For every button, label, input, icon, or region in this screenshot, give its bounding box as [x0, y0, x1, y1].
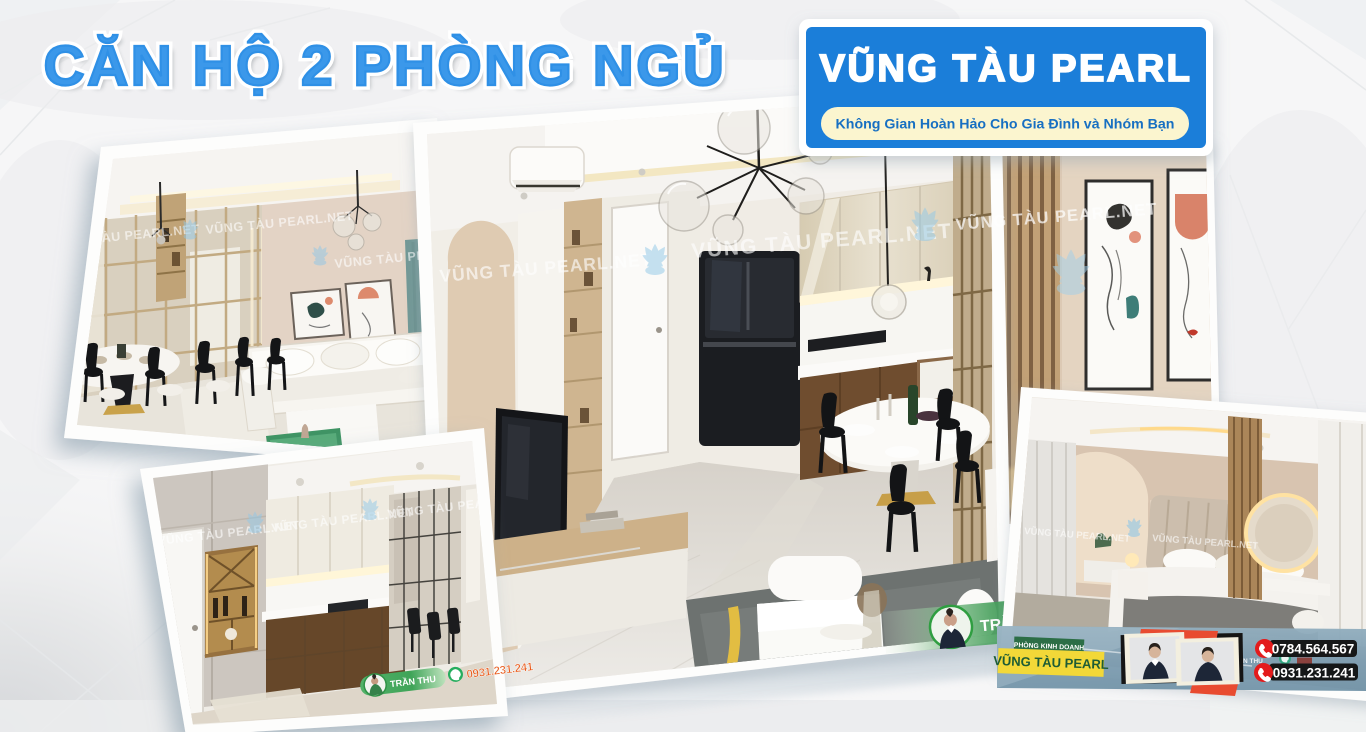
svg-text:CĂN HỘ 2 PHÒNG NGỦ: CĂN HỘ 2 PHÒNG NGỦ	[44, 33, 727, 98]
svg-text:VŨNG TÀU PEARL: VŨNG TÀU PEARL	[820, 46, 1193, 90]
svg-text:0931.231.241: 0931.231.241	[1273, 666, 1356, 681]
svg-text:0784.564.567: 0784.564.567	[1272, 642, 1355, 657]
svg-text:Không Gian Hoàn Hảo Cho Gia Đì: Không Gian Hoàn Hảo Cho Gia Đình và Nhóm…	[836, 117, 1175, 133]
